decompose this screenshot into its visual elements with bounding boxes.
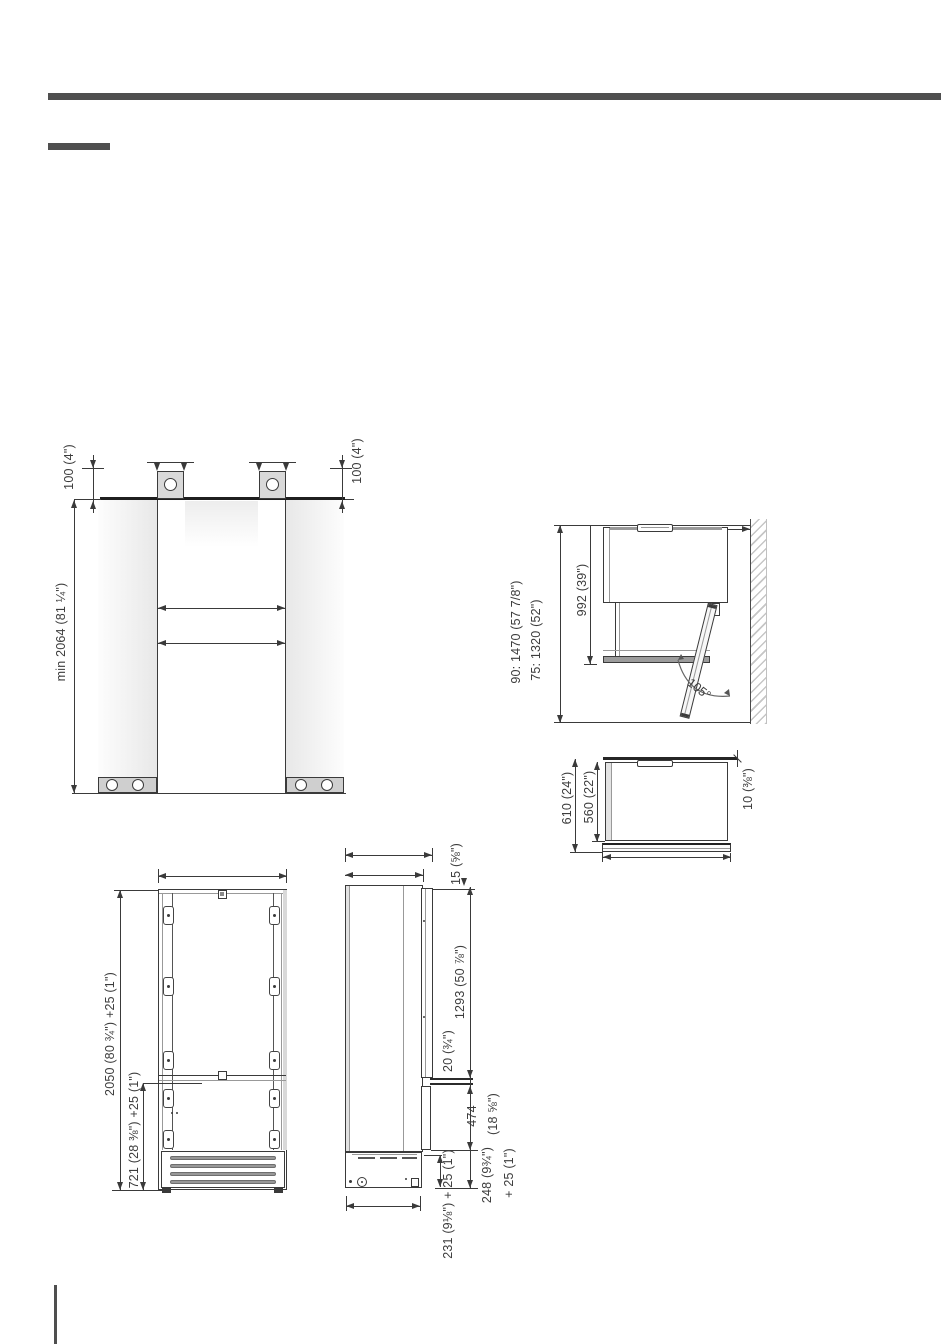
base-bracket [411, 1178, 419, 1187]
grille-slat [170, 1164, 276, 1168]
dim-line-560 [597, 762, 598, 842]
dim-arrow [742, 526, 750, 532]
front-rail-line [281, 893, 282, 1150]
ext-line [143, 1083, 202, 1084]
dim-arrow [415, 872, 423, 878]
dim-arrow [117, 1182, 123, 1190]
side-back-band [346, 886, 350, 1151]
dim-line-base-depth [346, 1206, 420, 1207]
dim-tick [584, 664, 597, 665]
dim-line-610 [575, 759, 576, 852]
dim-line-front-width [158, 876, 287, 877]
hinge-plate-pin [273, 1097, 276, 1100]
dim-arrow [467, 1142, 473, 1150]
detail-dot [423, 1016, 425, 1018]
detail-dot [405, 1178, 407, 1180]
side-lower-door [421, 1086, 431, 1150]
hinge-plate-pin [273, 985, 276, 988]
door-divider-line [159, 1080, 286, 1081]
hinge-plate-pin [167, 914, 170, 917]
ext-line [423, 869, 424, 882]
dim-label-10: 10 (⅜") [741, 768, 755, 810]
dim-label-992: 992 (39") [575, 564, 589, 617]
mid-clip [218, 1071, 227, 1080]
detail-dot [171, 1112, 173, 1114]
detail-dot [349, 1180, 352, 1183]
front-rail-line [273, 893, 274, 1150]
dim-arrow [467, 1086, 473, 1094]
dim-label-248-plus: + 25 (1") [502, 1148, 516, 1198]
grille-slat [170, 1172, 276, 1176]
door-inner-line [425, 889, 426, 1077]
base-vent-dash [380, 1157, 397, 1159]
hinge-plate-pin [167, 985, 170, 988]
side-front-frame-line [403, 886, 404, 1151]
dim-arrow [594, 762, 600, 770]
dim-label-248: 248 (9¾") [480, 1147, 494, 1203]
dim-arrow [723, 854, 731, 860]
dim-arrow [117, 890, 123, 898]
dim-arrow [572, 759, 578, 767]
wall-hatch [750, 519, 767, 724]
grille-slat [170, 1156, 276, 1160]
dim-label-depth-75: 75: 1320 (52") [529, 599, 543, 681]
dim-arrow [345, 872, 353, 878]
dim-line-2050 [120, 890, 121, 1190]
grille-slat [170, 1180, 276, 1184]
dim-line-side-top1 [345, 855, 432, 856]
dim-arrow [557, 715, 563, 723]
dim-label-721: 721 (28 ⅜") +25 (1") [127, 1072, 141, 1189]
dim-arrow [572, 844, 578, 852]
hinge-plate-pin [167, 1059, 170, 1062]
dim-arrow [603, 854, 611, 860]
dim-arrow [594, 834, 600, 842]
dim-label-474-in: (18 ⅝") [486, 1093, 500, 1135]
base-top-line [352, 1154, 417, 1155]
hinge-plate-pin [273, 1059, 276, 1062]
front-right-shadow [283, 890, 287, 1150]
hinge-plate-pin [273, 914, 276, 917]
dim-arrow [467, 887, 473, 895]
dim-line-992 [590, 525, 591, 665]
hinge-plate-pin [273, 1138, 276, 1141]
dim-line-side-top2 [345, 875, 423, 876]
top-clip-fill [220, 892, 224, 896]
hinge-plate-pin [167, 1138, 170, 1141]
dim-tick-bar [430, 1078, 473, 1080]
dim-arrow [158, 873, 166, 879]
dim-line-width [603, 857, 731, 858]
dim-arrow [467, 1180, 473, 1188]
foot [162, 1188, 171, 1193]
dim-label-1293: 1293 (50 ⅞") [453, 945, 467, 1019]
dim-label-2050: 2050 (80 ¾") +25 (1") [103, 972, 117, 1096]
dim-tick [455, 1150, 478, 1151]
dim-arrow [279, 873, 287, 879]
manual-page: 100 (4") 100 (4") min 2064 (81 ¼") [0, 0, 950, 1344]
dim-line-open-total [560, 525, 561, 723]
dim-arrow [587, 656, 593, 664]
dim-arrow [412, 1203, 420, 1209]
side-upper-door [421, 888, 433, 1078]
roller-hub [361, 1181, 363, 1183]
dim-arrow [424, 852, 432, 858]
detail-dot [423, 920, 425, 922]
dim-label-depth-90: 90: 1470 (57 7/8") [509, 580, 523, 683]
dim-arrow [467, 1070, 473, 1078]
front-body [158, 889, 287, 1190]
ext-line [570, 852, 603, 853]
base-vent-dash [358, 1157, 375, 1159]
side-body [345, 885, 423, 1152]
dim-label-20: 20 (¾") [441, 1030, 455, 1072]
dim-line-721 [143, 1083, 144, 1190]
dim-arrow [346, 1203, 354, 1209]
ext-line [112, 1190, 162, 1191]
dim-tick-bar [430, 1083, 473, 1085]
door-slab-line [603, 848, 730, 849]
dim-arrow [557, 525, 563, 533]
handle-plan-closed [637, 760, 673, 767]
front-rail-line [162, 893, 163, 1150]
dim-label-560: 560 (22") [582, 771, 596, 824]
hinge-plate-pin [167, 1097, 170, 1100]
dim-label-231: 231 (9⅛") + 25 (1") [441, 1149, 455, 1259]
detail-dot [176, 1112, 178, 1114]
cabinet-left-strip [606, 763, 612, 840]
dim-label-610: 610 (24") [560, 772, 574, 825]
dim-label-474-mm: 474 [465, 1105, 479, 1126]
ext-line [420, 1196, 421, 1211]
ext-line [432, 848, 433, 862]
foot [274, 1188, 283, 1193]
cabinet-body-closed [605, 762, 728, 841]
base-vent-dash [402, 1157, 417, 1159]
dim-label-15: 15 (⅝") [449, 843, 463, 885]
dim-arrow [345, 852, 353, 858]
